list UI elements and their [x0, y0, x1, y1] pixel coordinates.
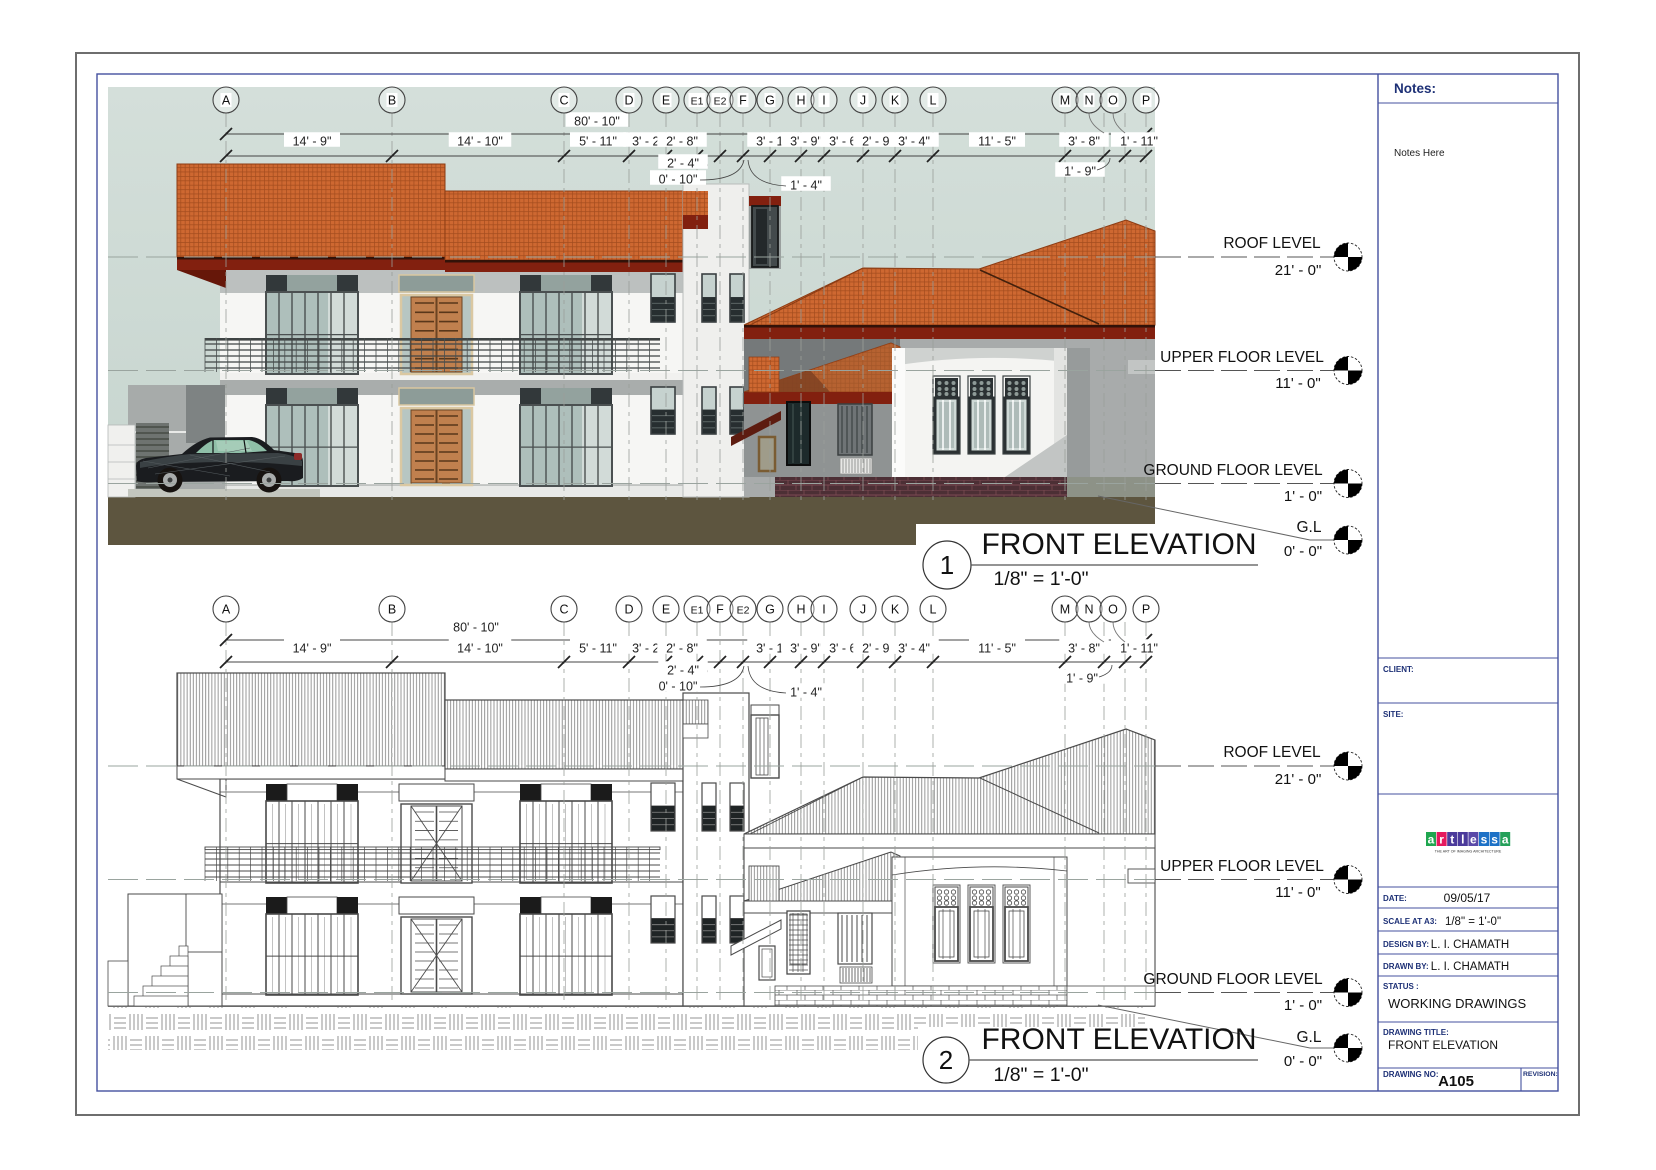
svg-text:DESIGN BY:: DESIGN BY:	[1383, 940, 1429, 949]
svg-text:M: M	[1060, 602, 1070, 616]
svg-text:GROUND FLOOR LEVEL: GROUND FLOOR LEVEL	[1143, 462, 1323, 479]
svg-text:UPPER FLOOR LEVEL: UPPER FLOOR LEVEL	[1160, 349, 1324, 366]
svg-text:FRONT ELEVATION: FRONT ELEVATION	[981, 528, 1256, 561]
svg-text:5' - 11": 5' - 11"	[579, 135, 617, 149]
svg-text:2' - 8": 2' - 8"	[666, 135, 698, 149]
svg-text:STATUS :: STATUS :	[1383, 982, 1419, 991]
svg-text:1/8" = 1'-0": 1/8" = 1'-0"	[1445, 916, 1501, 928]
svg-text:s: s	[1491, 833, 1498, 847]
svg-text:FRONT ELEVATION: FRONT ELEVATION	[1388, 1038, 1498, 1052]
svg-text:G: G	[765, 602, 775, 616]
svg-text:L: L	[930, 93, 937, 107]
svg-text:e: e	[1470, 833, 1477, 847]
svg-text:GROUND FLOOR LEVEL: GROUND FLOOR LEVEL	[1143, 971, 1323, 988]
svg-text:DRAWN BY:: DRAWN BY:	[1383, 962, 1429, 971]
svg-text:REVISION:: REVISION:	[1523, 1071, 1558, 1078]
svg-text:E: E	[662, 602, 670, 616]
svg-text:ROOF LEVEL: ROOF LEVEL	[1223, 235, 1321, 252]
svg-text:J: J	[860, 93, 866, 107]
svg-text:s: s	[1481, 833, 1488, 847]
svg-text:0' - 10": 0' - 10"	[659, 680, 698, 694]
svg-text:DRAWING NO:: DRAWING NO:	[1383, 1070, 1439, 1079]
svg-text:11' - 0": 11' - 0"	[1275, 375, 1320, 392]
svg-text:SITE:: SITE:	[1383, 710, 1403, 719]
svg-text:1' - 0": 1' - 0"	[1284, 997, 1322, 1014]
svg-text:2' - 9": 2' - 9"	[862, 642, 894, 656]
svg-text:K: K	[891, 602, 900, 616]
svg-text:N: N	[1084, 93, 1093, 107]
svg-text:2' - 8": 2' - 8"	[666, 642, 698, 656]
svg-text:0' - 10": 0' - 10"	[659, 173, 698, 187]
svg-text:E1: E1	[691, 95, 704, 107]
svg-text:F: F	[739, 93, 747, 107]
svg-text:1' - 9": 1' - 9"	[1066, 672, 1098, 686]
svg-text:a: a	[1502, 833, 1509, 847]
svg-text:C: C	[559, 93, 568, 107]
svg-text:2' - 9": 2' - 9"	[862, 135, 894, 149]
svg-text:O: O	[1108, 602, 1118, 616]
svg-text:1' - 9": 1' - 9"	[1064, 165, 1096, 179]
svg-text:A105: A105	[1438, 1073, 1474, 1090]
svg-text:2: 2	[939, 1045, 953, 1075]
svg-text:D: D	[624, 93, 633, 107]
svg-text:3' - 4": 3' - 4"	[898, 135, 930, 149]
svg-text:E: E	[662, 93, 670, 107]
svg-text:t: t	[1450, 833, 1454, 847]
svg-text:14' - 9": 14' - 9"	[293, 642, 332, 656]
svg-text:11' - 0": 11' - 0"	[1275, 884, 1320, 901]
svg-text:E1: E1	[691, 604, 704, 616]
svg-text:J: J	[860, 602, 866, 616]
svg-text:11' - 5": 11' - 5"	[978, 135, 1016, 149]
svg-text:21' - 0": 21' - 0"	[1275, 771, 1322, 788]
svg-text:N: N	[1084, 602, 1093, 616]
svg-text:M: M	[1060, 93, 1070, 107]
svg-text:P: P	[1142, 93, 1150, 107]
svg-text:1' - 11": 1' - 11"	[1120, 642, 1158, 656]
svg-text:FRONT ELEVATION: FRONT ELEVATION	[981, 1023, 1256, 1056]
svg-text:H: H	[796, 602, 805, 616]
svg-text:K: K	[891, 93, 900, 107]
svg-text:1' - 4": 1' - 4"	[790, 686, 822, 700]
svg-text:G.L: G.L	[1297, 1029, 1322, 1046]
svg-text:3' - 8": 3' - 8"	[1068, 642, 1100, 656]
svg-text:1: 1	[940, 550, 954, 580]
svg-text:Notes:: Notes:	[1394, 81, 1436, 96]
svg-text:F: F	[716, 602, 724, 616]
svg-text:3' - 8": 3' - 8"	[1068, 135, 1100, 149]
svg-text:2' - 4": 2' - 4"	[667, 664, 699, 678]
svg-text:P: P	[1142, 602, 1150, 616]
svg-text:CLIENT:: CLIENT:	[1383, 665, 1414, 674]
svg-text:21' - 0": 21' - 0"	[1275, 262, 1322, 279]
svg-text:14' - 10": 14' - 10"	[457, 135, 503, 149]
svg-text:L. I. CHAMATH: L. I. CHAMATH	[1431, 939, 1509, 951]
svg-text:A: A	[222, 93, 231, 107]
svg-text:O: O	[1108, 93, 1118, 107]
svg-text:80' - 10": 80' - 10"	[453, 621, 499, 635]
svg-text:5' - 11": 5' - 11"	[579, 642, 617, 656]
svg-text:SCALE AT A3:: SCALE AT A3:	[1383, 917, 1437, 926]
svg-text:L: L	[930, 602, 937, 616]
svg-text:G: G	[765, 93, 775, 107]
svg-text:1' - 11": 1' - 11"	[1120, 135, 1158, 149]
svg-text:0' - 0": 0' - 0"	[1284, 543, 1322, 560]
svg-text:1' - 4": 1' - 4"	[790, 179, 822, 193]
svg-text:B: B	[388, 93, 396, 107]
svg-text:1/8" = 1'-0": 1/8" = 1'-0"	[993, 568, 1088, 590]
svg-text:E2: E2	[714, 95, 727, 107]
svg-text:B: B	[388, 602, 396, 616]
svg-text:DATE:: DATE:	[1383, 894, 1407, 903]
svg-text:I: I	[822, 602, 825, 616]
svg-text:a: a	[1428, 833, 1435, 847]
svg-text:1/8" = 1'-0": 1/8" = 1'-0"	[993, 1064, 1088, 1086]
svg-text:14' - 10": 14' - 10"	[457, 642, 503, 656]
svg-text:WORKING DRAWINGS: WORKING DRAWINGS	[1388, 996, 1527, 1011]
svg-text:09/05/17: 09/05/17	[1444, 891, 1491, 905]
svg-text:UPPER FLOOR LEVEL: UPPER FLOOR LEVEL	[1160, 858, 1324, 875]
svg-text:Notes Here: Notes Here	[1394, 148, 1445, 159]
svg-text:ROOF LEVEL: ROOF LEVEL	[1223, 744, 1321, 761]
svg-text:3' - 4": 3' - 4"	[898, 642, 930, 656]
svg-text:THE ART OF IMAGING ARCHITECTUR: THE ART OF IMAGING ARCHITECTURE	[1435, 850, 1502, 854]
svg-text:2' - 4": 2' - 4"	[667, 157, 699, 171]
svg-text:A: A	[222, 602, 231, 616]
svg-text:G.L: G.L	[1297, 519, 1322, 536]
svg-text:C: C	[559, 602, 568, 616]
svg-text:80' - 10": 80' - 10"	[574, 115, 620, 129]
svg-text:L. I. CHAMATH: L. I. CHAMATH	[1431, 961, 1509, 973]
svg-text:E2: E2	[737, 604, 750, 616]
svg-text:1' - 0": 1' - 0"	[1284, 488, 1322, 505]
svg-text:r: r	[1439, 833, 1444, 847]
svg-text:0' - 0": 0' - 0"	[1284, 1053, 1322, 1070]
svg-text:D: D	[624, 602, 633, 616]
svg-text:14' - 9": 14' - 9"	[293, 135, 332, 149]
svg-text:DRAWING TITLE:: DRAWING TITLE:	[1383, 1028, 1449, 1037]
svg-text:11' - 5": 11' - 5"	[978, 642, 1016, 656]
svg-text:3' - 9": 3' - 9"	[790, 642, 822, 656]
svg-text:l: l	[1461, 833, 1464, 847]
svg-text:H: H	[796, 93, 805, 107]
svg-text:I: I	[822, 93, 825, 107]
svg-text:3' - 9": 3' - 9"	[790, 135, 822, 149]
